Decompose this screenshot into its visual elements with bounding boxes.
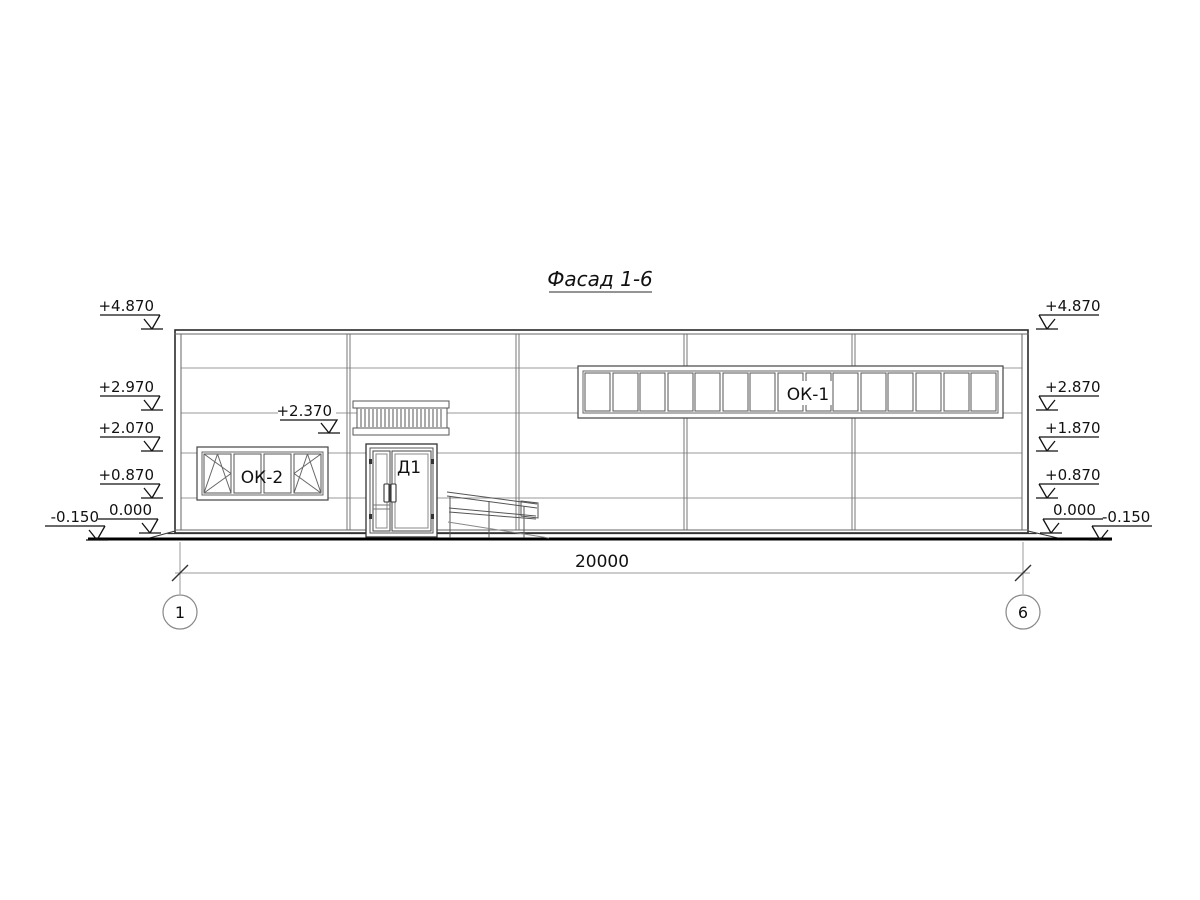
elevation-value: 0.000 [109,501,152,519]
elevation-value: +0.870 [1045,466,1101,484]
window-ok2: ОК-2 [197,447,328,500]
canopy-bottom-rail [353,428,449,435]
elevation-value: +2.870 [1045,378,1101,396]
elevation-arrow [1036,396,1099,410]
dimension-value: 20000 [575,552,629,572]
door-handle-right [391,484,396,502]
canopy-mark-value: +2.370 [276,402,332,420]
elevation-value: -0.150 [51,508,99,526]
strip-window-ok1: ОК-1 [578,366,1003,418]
building-outline [146,330,1062,539]
elevation-value: +4.870 [1045,297,1101,315]
elevation-arrow [45,526,108,540]
facade-elevation-canvas: Фасад 1-6 [0,0,1200,900]
door-label: Д1 [397,458,421,478]
elevation-arrow [1036,437,1099,451]
elevation-value: +2.970 [98,378,154,396]
elevation-arrow [100,396,163,410]
elevation-arrow [100,484,163,498]
elevation-marks-left: +4.870 +2.970 +2.070 +0.870 0.000 -0.150 [45,297,163,540]
canopy-louver-slats [361,409,441,427]
drawing-title: Фасад 1-6 [547,267,653,292]
elevation-value: +4.870 [98,297,154,315]
elevation-value: +0.870 [98,466,154,484]
axis-number-right: 6 [1018,603,1028,622]
axis-bubbles: 1 6 [163,595,1040,629]
dimension-chain: 20000 [172,542,1031,594]
ok1-label: ОК-1 [787,385,829,405]
elevation-arrow [1036,484,1099,498]
elevation-value: +1.870 [1045,419,1101,437]
elevation-arrow [1036,315,1099,329]
elevation-arrow [100,315,163,329]
door-canopy-louver [353,401,449,435]
elevation-value: 0.000 [1053,501,1096,519]
axis-number-left: 1 [175,603,185,622]
door-handle-left [384,484,389,502]
elevation-marks-right: +4.870 +2.870 +1.870 +0.870 0.000 -0.150 [1036,297,1152,540]
elevation-arrow [100,437,163,451]
canopy-top-rail [353,401,449,408]
elevation-arrow [1089,526,1152,540]
elevation-arrow [98,519,161,533]
facade-drawing-sheet: Фасад 1-6 [0,0,1200,900]
elevation-value: -0.150 [1102,508,1150,526]
elevation-value: +2.070 [98,419,154,437]
title-text: Фасад 1-6 [547,267,653,291]
door-d1: Д1 [366,444,437,537]
ok2-label: ОК-2 [241,468,283,488]
facade-outer-rect [175,330,1028,533]
